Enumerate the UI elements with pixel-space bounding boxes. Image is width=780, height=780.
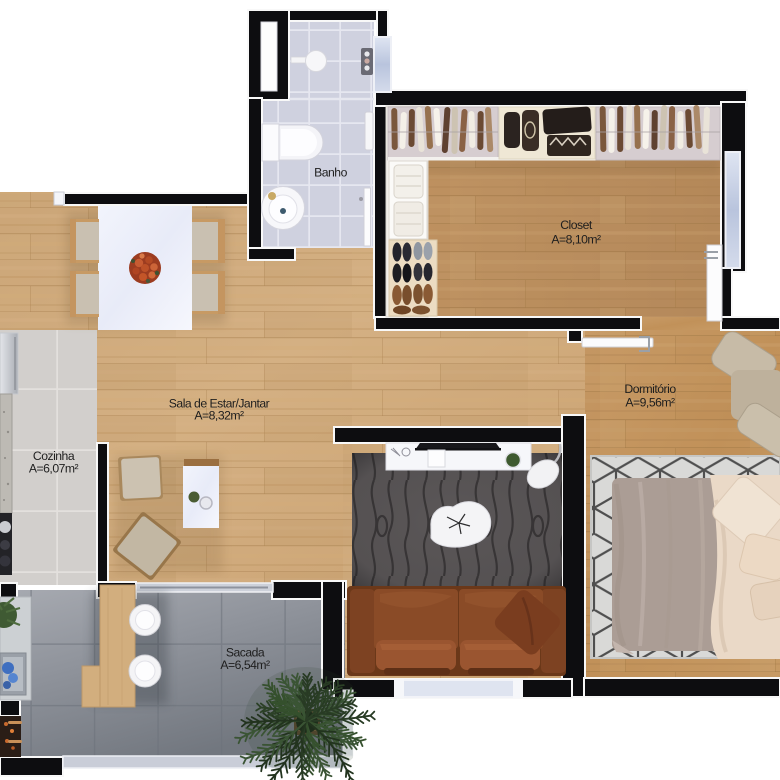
svg-text:A=8,10m²: A=8,10m² bbox=[551, 233, 601, 247]
svg-text:Closet: Closet bbox=[560, 218, 593, 232]
svg-text:A=8,32m²: A=8,32m² bbox=[194, 409, 244, 423]
svg-text:A=9,56m²: A=9,56m² bbox=[625, 396, 675, 410]
svg-text:Dormitório: Dormitório bbox=[624, 382, 676, 396]
svg-text:A=6,54m²: A=6,54m² bbox=[220, 658, 270, 672]
svg-text:Banho: Banho bbox=[314, 166, 347, 180]
svg-text:A=6,07m²: A=6,07m² bbox=[29, 462, 79, 476]
